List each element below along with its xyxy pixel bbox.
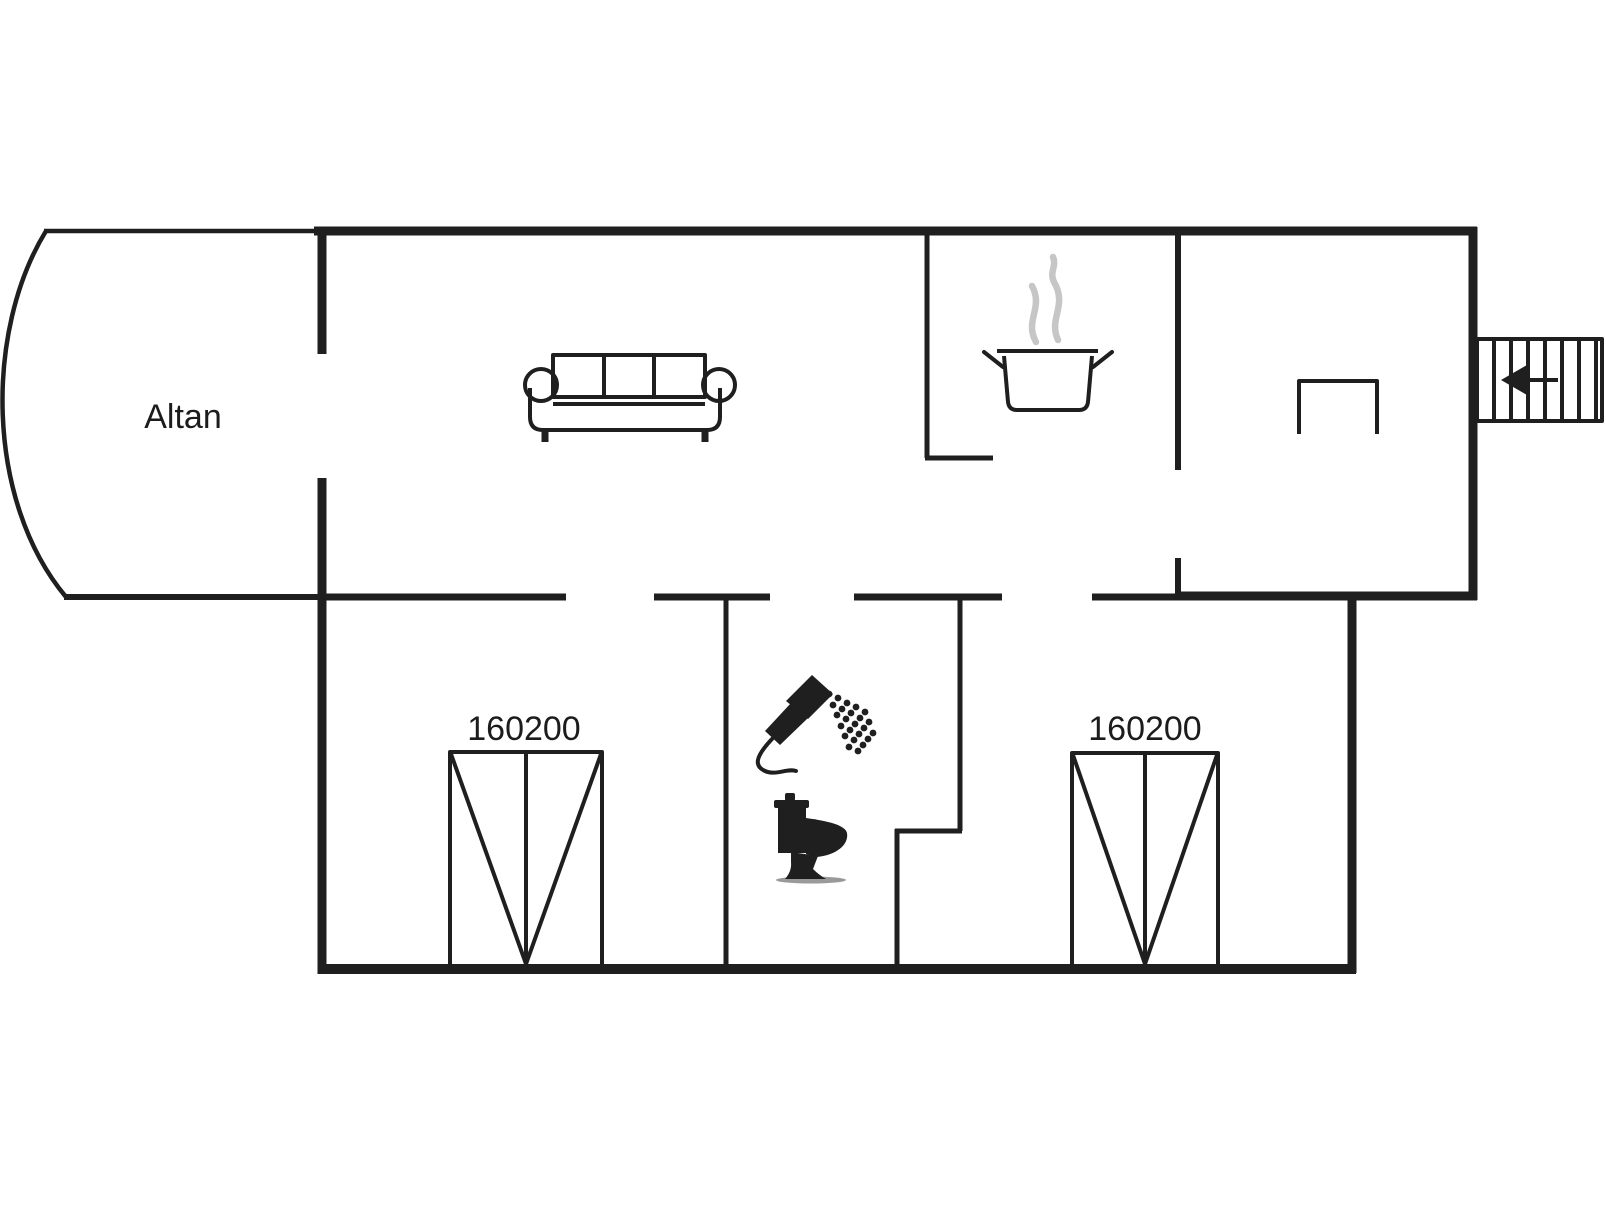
floor-plan-page: Altan — [0, 0, 1606, 1205]
toilet-tank — [778, 806, 806, 853]
double-bed-left-icon — [450, 752, 602, 966]
steam-icon — [1032, 257, 1059, 342]
steam-wisp — [1052, 257, 1059, 340]
shower-hose — [758, 739, 796, 773]
bed-diagonal — [1073, 755, 1145, 964]
toilet-bowl — [806, 818, 847, 857]
stairs-icon — [1477, 339, 1602, 421]
balcony-label: Altan — [144, 398, 222, 436]
pot-body — [1004, 356, 1092, 410]
shower-icon — [758, 675, 877, 773]
bed-diagonal — [451, 754, 526, 964]
arrow-head — [1501, 365, 1527, 395]
steam-wisp — [1032, 286, 1036, 342]
sofa-base — [530, 388, 720, 430]
sofa-cushions — [553, 355, 705, 397]
bed-diagonal — [526, 754, 601, 964]
toilet-button — [785, 793, 795, 801]
shower-spray-dots — [826, 691, 877, 755]
bed-right-size-label: 160200 — [1088, 710, 1201, 748]
double-bed-right-icon — [1072, 753, 1218, 966]
sofa-icon — [525, 355, 735, 442]
pot-left-handle — [984, 352, 1003, 367]
balcony-curved-wall — [2, 231, 66, 597]
pot-right-handle — [1093, 352, 1112, 367]
cooking-pot-icon — [984, 351, 1112, 410]
floor-plan-svg: Altan — [0, 0, 1606, 1205]
toilet-icon — [774, 793, 847, 884]
bed-diagonal — [1145, 755, 1217, 964]
table-icon — [1299, 381, 1377, 434]
bed-left-size-label: 160200 — [467, 710, 580, 748]
